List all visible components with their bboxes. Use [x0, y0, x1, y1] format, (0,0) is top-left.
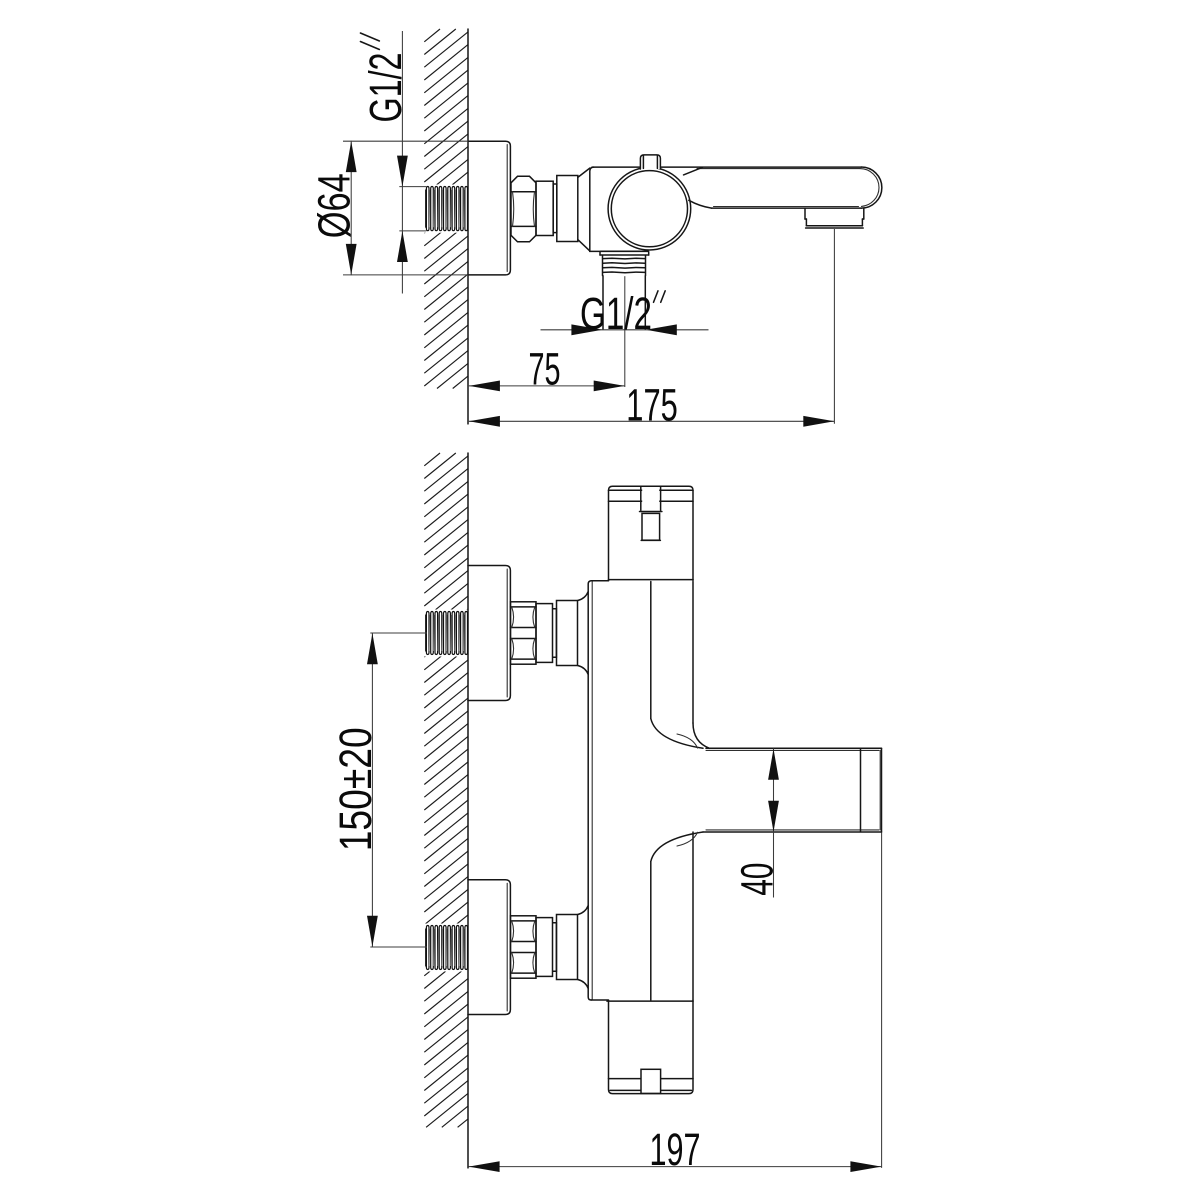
svg-text:Ø64: Ø64: [308, 173, 359, 238]
svg-text:197: 197: [650, 1124, 701, 1175]
svg-text:150±20: 150±20: [330, 727, 381, 851]
svg-text:40: 40: [731, 863, 782, 896]
svg-text:G1/2: G1/2: [580, 288, 652, 339]
svg-text:75: 75: [529, 344, 561, 395]
svg-text:G1/2: G1/2: [360, 53, 411, 123]
svg-text:175: 175: [626, 379, 678, 430]
